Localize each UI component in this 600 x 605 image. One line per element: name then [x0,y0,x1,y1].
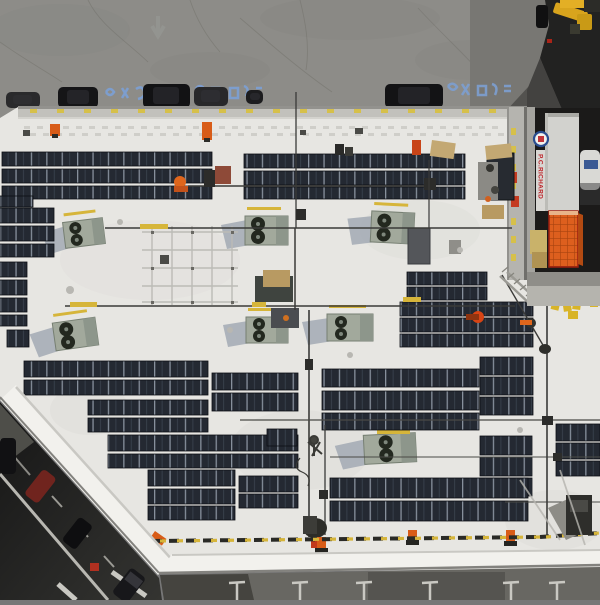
svg-text:P.C.RICHARD: P.C.RICHARD [537,154,544,199]
